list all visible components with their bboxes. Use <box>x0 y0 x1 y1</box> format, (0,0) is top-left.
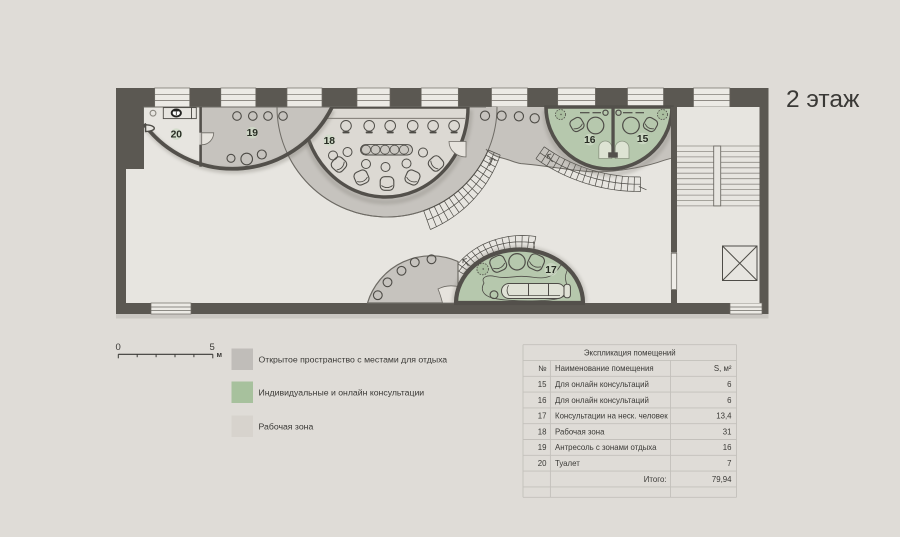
svg-text:Экспликация помещений: Экспликация помещений <box>584 349 676 358</box>
svg-text:16: 16 <box>584 135 596 146</box>
svg-text:6: 6 <box>727 396 732 405</box>
svg-text:13,4: 13,4 <box>716 412 732 421</box>
svg-text:7: 7 <box>727 459 731 468</box>
svg-text:Для онлайн консультаций: Для онлайн консультаций <box>555 396 649 405</box>
svg-text:S, м²: S, м² <box>714 364 732 373</box>
svg-text:Наименование помещения: Наименование помещения <box>555 364 654 373</box>
svg-text:19: 19 <box>247 128 259 139</box>
svg-text:16: 16 <box>723 443 732 452</box>
svg-text:20: 20 <box>171 130 183 141</box>
svg-text:Для онлайн консультаций: Для онлайн консультаций <box>555 380 649 389</box>
svg-text:5: 5 <box>210 342 215 353</box>
svg-text:20: 20 <box>538 459 547 468</box>
svg-text:№: № <box>538 364 547 373</box>
svg-text:0: 0 <box>116 342 121 353</box>
svg-text:Туалет: Туалет <box>555 459 580 468</box>
svg-text:Индивидуальные и онлайн консул: Индивидуальные и онлайн консультации <box>259 388 425 398</box>
svg-text:Итого:: Итого: <box>644 475 667 484</box>
svg-text:79,94: 79,94 <box>712 475 732 484</box>
svg-text:15: 15 <box>538 380 547 389</box>
svg-text:Открытое пространство с местам: Открытое пространство с местами для отды… <box>259 355 448 365</box>
svg-text:17: 17 <box>545 265 557 276</box>
svg-text:31: 31 <box>723 427 732 436</box>
svg-text:6: 6 <box>727 380 732 389</box>
svg-text:Антресоль с зонами отдыха: Антресоль с зонами отдыха <box>555 443 657 452</box>
svg-text:Рабочая зона: Рабочая зона <box>259 422 314 432</box>
svg-text:18: 18 <box>538 427 547 436</box>
svg-text:16: 16 <box>538 396 547 405</box>
svg-text:19: 19 <box>538 443 547 452</box>
svg-text:17: 17 <box>538 412 547 421</box>
svg-text:Консультации на неск. человек: Консультации на неск. человек <box>555 412 668 421</box>
svg-text:2 этаж: 2 этаж <box>786 86 860 113</box>
svg-text:15: 15 <box>637 134 649 145</box>
svg-text:18: 18 <box>324 136 336 147</box>
svg-text:м: м <box>217 350 223 359</box>
svg-text:Рабочая зона: Рабочая зона <box>555 427 605 436</box>
